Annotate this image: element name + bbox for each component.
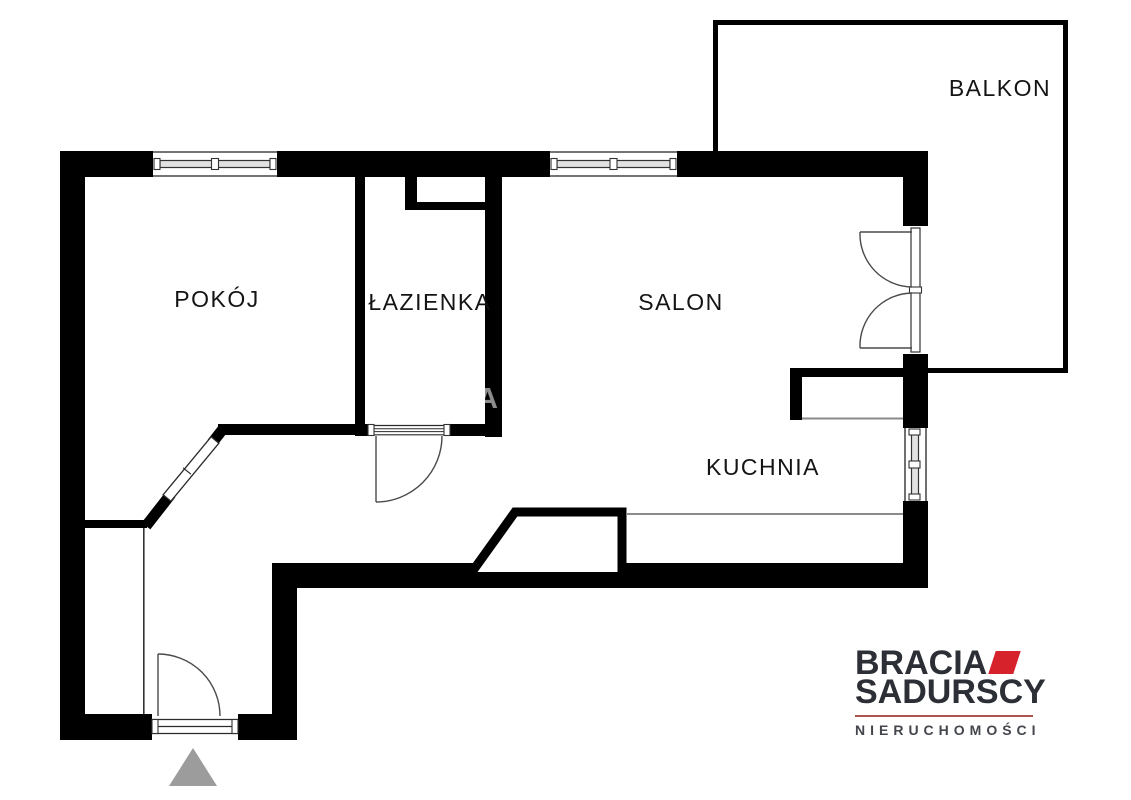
door-post <box>232 720 238 734</box>
door-swing-arc <box>158 654 220 716</box>
room-label-pokoj: POKÓJ <box>174 286 259 312</box>
room-label-lazienka: ŁAZIENKA <box>368 289 491 315</box>
logo-divider <box>855 715 1033 717</box>
floorplan-page: POKÓJ ŁAZIENKA SALON KUCHNIA BALKON A BR… <box>0 0 1131 800</box>
entrance-marker-icon <box>169 748 217 786</box>
agency-logo: BRACIA SADURSCY NIERUCHOMOŚCI <box>855 649 1046 738</box>
wall-segment <box>272 563 297 740</box>
wall-segment <box>903 151 928 226</box>
window-mullion <box>610 159 617 170</box>
wall-segment <box>447 424 502 436</box>
window-pokoj <box>153 151 277 178</box>
wall-segment <box>85 520 147 528</box>
wall-segment <box>277 151 550 177</box>
kitchen-niche-wall <box>790 368 802 420</box>
wall-segment <box>60 151 85 740</box>
logo-flag-icon <box>988 651 1020 674</box>
kitchen-niche-wall <box>790 368 903 377</box>
room-label-balkon: BALKON <box>949 75 1051 101</box>
wall-segment <box>355 177 365 427</box>
door-post <box>444 425 450 436</box>
wall-segment <box>677 151 928 177</box>
window-mullion <box>909 461 920 468</box>
window-post <box>551 159 557 170</box>
wall-segment <box>218 424 365 435</box>
window-post <box>909 429 920 435</box>
room-label-kuchnia: KUCHNIA <box>706 454 820 480</box>
wall-segment <box>405 202 493 210</box>
wall-segment <box>903 354 928 428</box>
window-kitchen <box>903 428 928 501</box>
wall-segment <box>903 501 928 588</box>
wall-segment <box>60 714 152 740</box>
window-salon <box>550 151 677 178</box>
door-post <box>152 720 158 734</box>
diagonal-glazed-panel <box>163 437 219 501</box>
bathroom-door <box>368 424 450 503</box>
window-mullion <box>212 159 219 170</box>
door-swing-arc <box>376 436 442 502</box>
kitchen-partition <box>472 512 622 572</box>
window-post <box>909 494 920 500</box>
room-label-salon: SALON <box>638 289 723 315</box>
balcony-french-door <box>860 226 928 354</box>
logo-tagline: NIERUCHOMOŚCI <box>855 722 1046 738</box>
door-frame-divider <box>910 287 922 293</box>
entrance-door <box>152 654 238 741</box>
logo-word-sadurscy: SADURSCY <box>855 678 1046 706</box>
window-post <box>270 159 276 170</box>
door-post <box>368 425 374 436</box>
window-post <box>670 159 676 170</box>
logo-row-2: SADURSCY <box>855 678 1046 707</box>
window-post <box>154 159 160 170</box>
